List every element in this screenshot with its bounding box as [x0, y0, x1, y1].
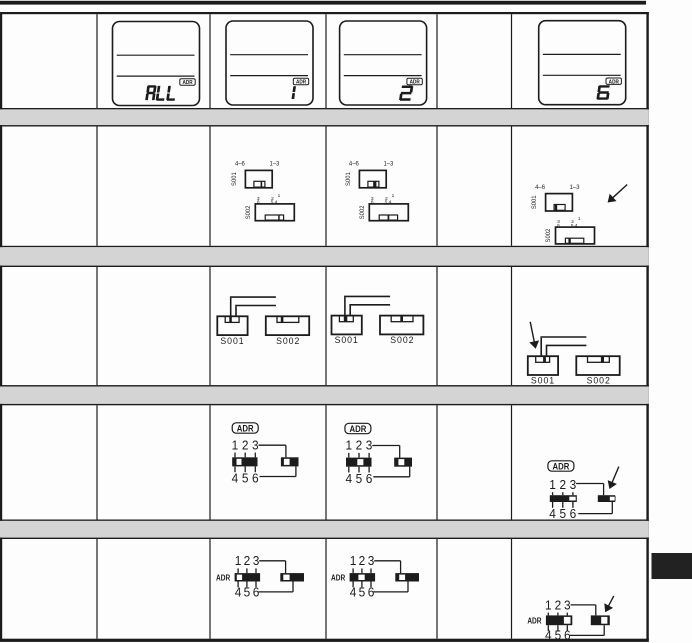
svg-text:ADR: ADR [216, 572, 231, 582]
svg-text:1: 1 [545, 598, 552, 612]
svg-text:3: 3 [570, 478, 577, 492]
svg-text:3: 3 [564, 598, 571, 612]
svg-text:2: 2 [356, 438, 363, 452]
svg-text:2: 2 [359, 554, 366, 568]
svg-text:3: 3 [366, 438, 373, 452]
svg-text:5: 5 [559, 507, 566, 521]
svg-text:S001: S001 [232, 172, 238, 186]
svg-text:4: 4 [232, 471, 239, 485]
svg-text:S002: S002 [276, 336, 300, 346]
svg-text:ADR: ADR [349, 423, 367, 434]
svg-text:4–6: 4–6 [535, 184, 545, 191]
svg-text:4: 4 [549, 507, 556, 521]
svg-text:2: 2 [242, 438, 249, 452]
svg-text:5 4: 5 4 [271, 200, 278, 206]
svg-text:5: 5 [242, 471, 249, 485]
svg-text:4: 4 [545, 628, 552, 642]
svg-text:1–3: 1–3 [383, 160, 393, 167]
svg-text:4–6: 4–6 [235, 160, 245, 167]
svg-text:4: 4 [345, 472, 352, 486]
svg-text:3: 3 [368, 554, 375, 568]
svg-text:6: 6 [557, 223, 560, 229]
svg-text:3: 3 [252, 438, 259, 452]
svg-text:ADR: ADR [410, 79, 420, 86]
svg-text:5: 5 [356, 472, 363, 486]
svg-text:S001: S001 [220, 336, 244, 346]
svg-text:6: 6 [257, 200, 260, 206]
svg-text:2: 2 [244, 554, 251, 568]
svg-text:4–6: 4–6 [349, 160, 359, 167]
svg-text:1: 1 [578, 216, 581, 222]
svg-text:ADR: ADR [296, 79, 306, 86]
svg-text:2: 2 [559, 478, 566, 492]
svg-text:6: 6 [252, 471, 259, 485]
svg-text:S001: S001 [531, 375, 555, 385]
svg-text:1: 1 [350, 554, 357, 568]
svg-text:S001: S001 [335, 335, 359, 345]
svg-text:ADR: ADR [527, 615, 542, 625]
svg-text:S002: S002 [360, 205, 366, 219]
svg-text:ADR: ADR [331, 572, 346, 582]
svg-text:6: 6 [371, 200, 374, 206]
svg-text:5: 5 [555, 628, 562, 642]
svg-text:3: 3 [253, 554, 260, 568]
svg-text:6: 6 [366, 472, 373, 486]
svg-text:2: 2 [555, 598, 562, 612]
svg-text:1: 1 [278, 193, 281, 199]
svg-text:ADR: ADR [182, 80, 192, 87]
svg-text:5 4: 5 4 [385, 200, 392, 206]
svg-text:ADR: ADR [609, 79, 619, 86]
svg-text:S002: S002 [246, 205, 252, 219]
svg-text:6: 6 [570, 507, 577, 521]
svg-text:1: 1 [549, 478, 556, 492]
svg-text:5: 5 [244, 585, 251, 599]
svg-text:6: 6 [564, 628, 571, 642]
svg-text:5: 5 [359, 585, 366, 599]
svg-text:1–3: 1–3 [269, 160, 279, 167]
svg-text:S002: S002 [390, 335, 414, 345]
svg-text:S001: S001 [346, 172, 352, 186]
svg-text:1: 1 [392, 193, 395, 199]
svg-text:S002: S002 [546, 228, 552, 242]
svg-text:S002: S002 [587, 375, 611, 385]
svg-text:ADR: ADR [552, 461, 570, 472]
svg-text:1–3: 1–3 [570, 184, 580, 191]
svg-text:ADR: ADR [237, 423, 255, 434]
svg-text:1: 1 [235, 554, 242, 568]
svg-text:1: 1 [232, 438, 239, 452]
svg-text:4: 4 [235, 585, 242, 599]
svg-text:S001: S001 [532, 195, 538, 209]
svg-text:4: 4 [350, 585, 357, 599]
svg-text:1: 1 [345, 438, 352, 452]
svg-text:5 4: 5 4 [571, 223, 578, 229]
